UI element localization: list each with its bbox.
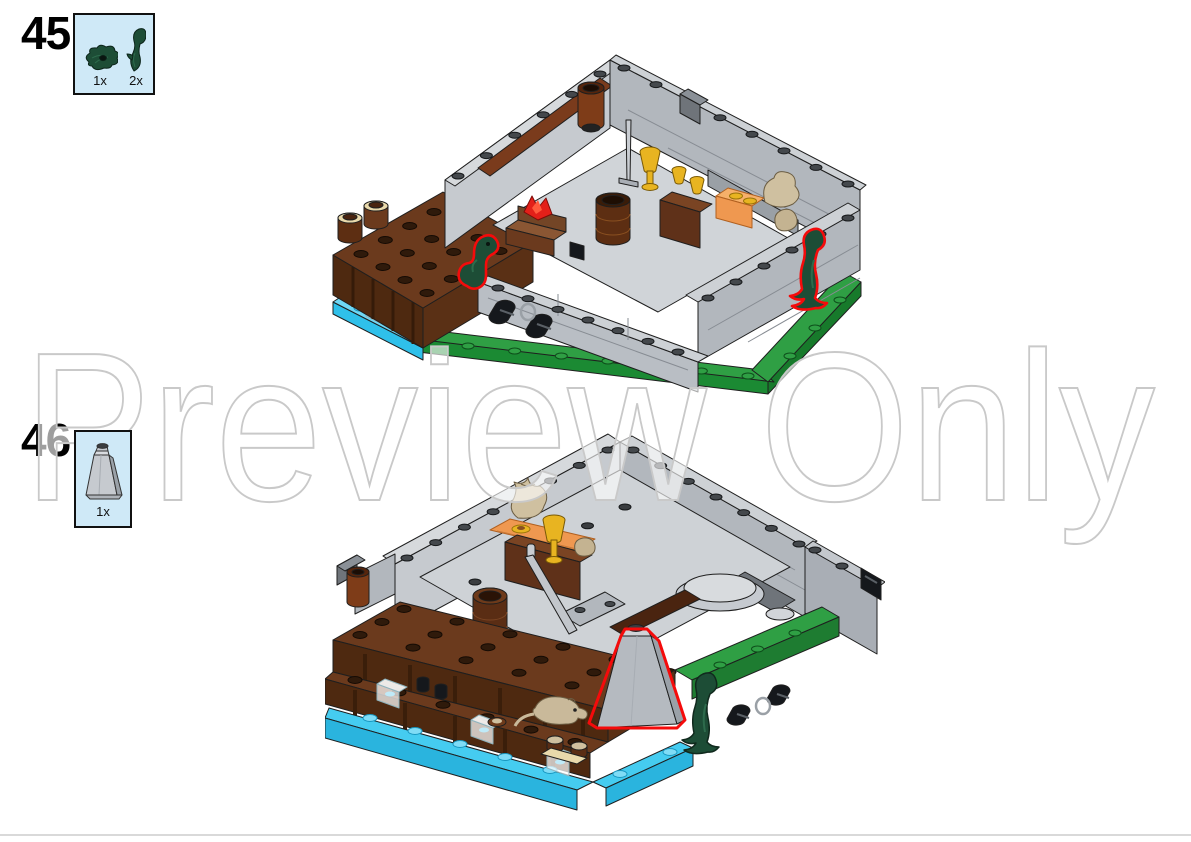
part-vine: 2x — [126, 26, 146, 87]
part-qty: 1x — [96, 505, 110, 518]
part-rock-cone: 1x — [82, 443, 124, 518]
rock-cone-icon — [82, 443, 124, 503]
step-45-parts-box: 1x 2x — [73, 13, 155, 95]
vine-icon — [126, 26, 146, 72]
vine-part — [682, 673, 719, 754]
footer-divider-line — [0, 834, 1191, 836]
step-46-parts-box: 1x — [74, 430, 132, 528]
step-46-number: 46 — [21, 417, 70, 463]
part-plant-leaves: 1x — [82, 44, 118, 87]
step-45-number: 45 — [21, 10, 70, 56]
instruction-page: 45 1x — [0, 0, 1191, 842]
step-45-model-image — [328, 50, 868, 400]
step-46-model-image — [325, 422, 885, 817]
plant-leaves-icon — [82, 44, 118, 72]
part-qty: 1x — [93, 74, 107, 87]
part-qty: 2x — [129, 74, 143, 87]
